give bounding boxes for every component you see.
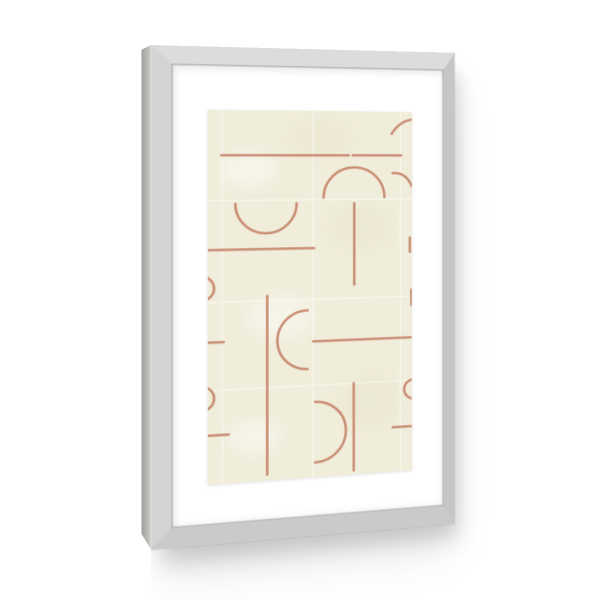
right-opening-semicircle — [315, 400, 346, 462]
picture-frame — [151, 45, 455, 550]
right-edge-curve-upper — [393, 173, 412, 187]
right-edge-curve-top — [392, 119, 412, 134]
frame-front-face — [151, 45, 455, 550]
mat-board — [171, 63, 443, 528]
frame-left-side-face — [141, 45, 151, 550]
mid-right-horizontal-line — [313, 337, 411, 341]
art-print — [208, 110, 412, 485]
row2-left-horizontal-line — [208, 248, 314, 250]
right-edge-arc-lower — [404, 379, 412, 398]
bottom-right-edge-line — [393, 426, 412, 427]
left-edge-arc-upper — [208, 278, 214, 299]
bottom-left-short-line — [208, 435, 229, 436]
art-print-svg — [208, 110, 412, 485]
product-photo-scene — [0, 0, 600, 600]
dome-semicircle — [324, 167, 385, 197]
left-edge-short-line — [208, 342, 224, 343]
down-bowl-semicircle — [235, 203, 296, 233]
